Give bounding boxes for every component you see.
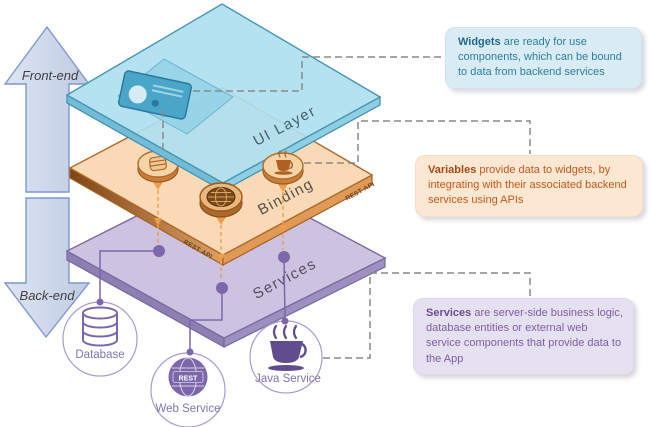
binding-coin-coffee [263, 151, 303, 184]
front-end-label: Front-end [22, 68, 79, 83]
callout-variables: Variables provide data to widgets, by in… [415, 155, 643, 217]
java-service-anchor-dot [282, 318, 289, 325]
back-end-label: Back-end [20, 288, 76, 303]
database-circle [63, 302, 137, 376]
database-node: Database [63, 299, 137, 377]
dot-on-layer-3 [278, 251, 290, 263]
database-anchor-dot [97, 299, 104, 306]
callout-widgets-lead: Widgets [458, 36, 501, 48]
diagram-canvas: Front-end Back-end Services Database [0, 0, 650, 427]
binding-coin-globe [200, 183, 242, 217]
dot-on-layer-2 [216, 282, 228, 294]
callout-services-lead: Services [426, 307, 471, 319]
callout-variables-lead: Variables [428, 164, 476, 176]
database-label: Database [75, 349, 124, 361]
globe-rest-icon: REST [169, 358, 208, 397]
callout-widgets: Widgets are ready for use components, wh… [445, 27, 642, 89]
web-service-anchor-dot [187, 349, 194, 356]
rest-badge: REST [179, 376, 198, 383]
java-service-label: Java Service [255, 373, 321, 385]
globe-coin-icon [207, 188, 235, 207]
dot-on-layer-1 [153, 245, 165, 257]
callout-services: Services are server-side business logic,… [413, 298, 634, 375]
web-service-label: Web Service [156, 403, 221, 415]
web-service-node: REST Web Service [151, 349, 225, 427]
connector-java-service [284, 260, 285, 319]
